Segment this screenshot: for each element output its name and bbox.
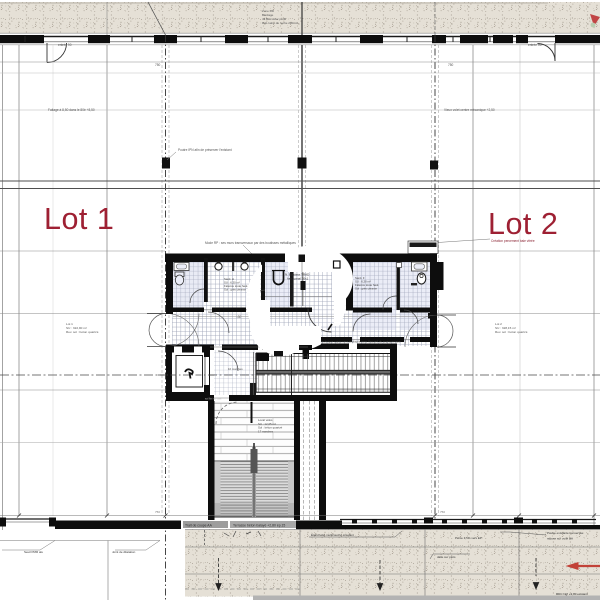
svg-text:entrée 90: entrée 90 (528, 43, 542, 47)
svg-text:750: 750 (155, 510, 160, 514)
svg-text:Lot 1: Lot 1 (44, 202, 114, 236)
svg-text:Pente 1,5% vers EP: Pente 1,5% vers EP (455, 536, 482, 540)
svg-text:entrée 90: entrée 90 (58, 43, 72, 47)
svg-text:Lot 2: Lot 2 (488, 207, 558, 241)
svg-text:RDC Ngf +2,80 existant: RDC Ngf +2,80 existant (556, 592, 588, 596)
svg-text:Étanchéité multicouche s/isola: Étanchéité multicouche s/isolant (311, 532, 354, 537)
svg-text:Trait de coupe AA: Trait de coupe AA (185, 523, 213, 527)
svg-text:Joint de dilatation: Joint de dilatation (112, 550, 136, 554)
svg-text:Création percement baie vitrée: Création percement baie vitrée (491, 239, 535, 243)
svg-text:750: 750 (448, 63, 454, 67)
svg-text:750: 750 (155, 63, 161, 67)
svg-text:Faitage à 8,50 dans le 80è: Faitage à 8,50 dans le 80è +8,50 (48, 108, 95, 112)
svg-text:750: 750 (440, 510, 445, 514)
svg-text:Vieux volet centre mécanique: Vieux volet centre mécanique +2,50 (444, 108, 495, 112)
svg-text:sol fini niv bas: sol fini niv bas (205, 397, 222, 401)
svg-text:Seuil PMR alu: Seuil PMR alu (24, 550, 43, 554)
svg-text:Rev. sol : béton quartzé: Rev. sol : béton quartzé (495, 330, 528, 334)
svg-text:RAL laine de roche 200mm: RAL laine de roche 200mm (262, 21, 299, 25)
svg-text:repose sur voile BA: repose sur voile BA (547, 537, 573, 541)
svg-text:Terrasse béton balayé +2,80: Terrasse béton balayé +2,80 ép.15 (233, 523, 285, 527)
svg-text:dalle sur plots: dalle sur plots (437, 555, 456, 559)
svg-text:Poutre IPN afin de préserver l: Poutre IPN afin de préserver l'existant (178, 148, 232, 152)
svg-text:Rev. sol : béton quartzé: Rev. sol : béton quartzé (66, 330, 99, 334)
svg-text:17 marches: 17 marches (258, 429, 274, 433)
svg-text:Poutre existante conservée: Poutre existante conservée (547, 531, 584, 535)
